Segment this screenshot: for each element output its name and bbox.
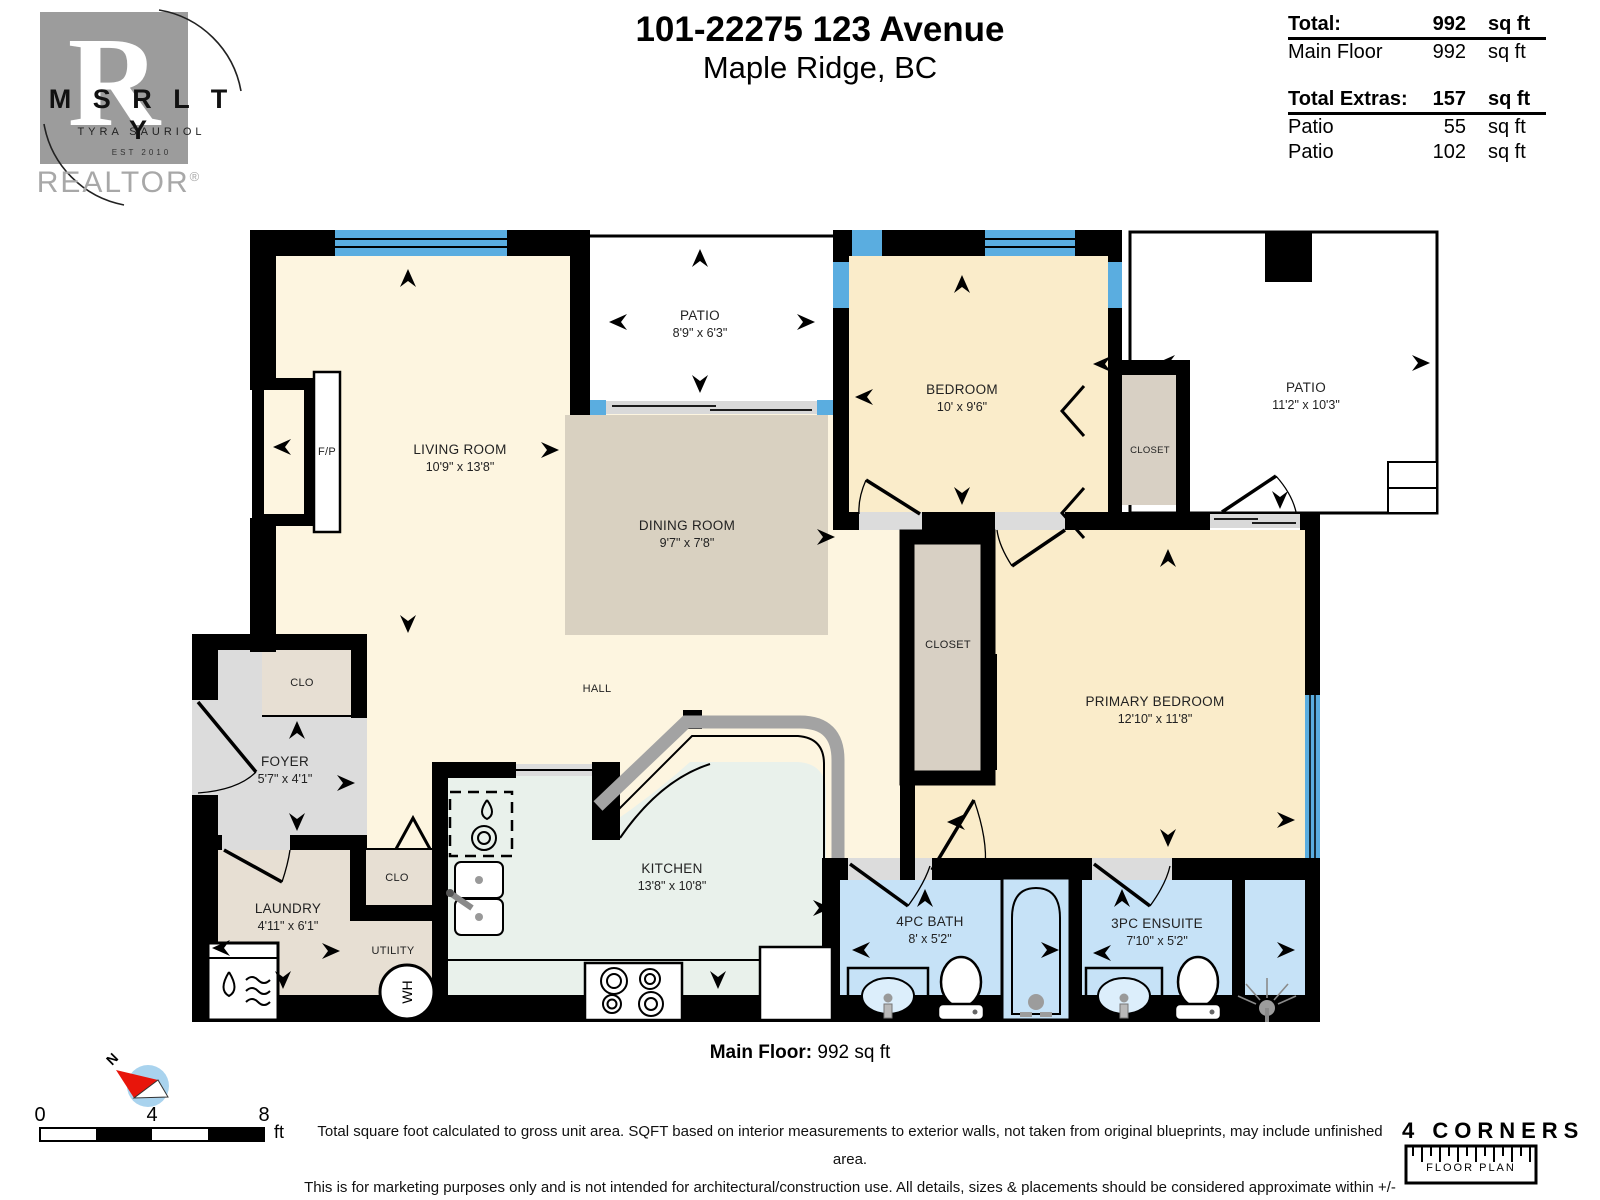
- room-label-clo-top: CLO: [290, 676, 314, 690]
- foyer-dims: 5'7" x 4'1": [258, 771, 313, 787]
- disclaimer-line-2: This is for marketing purposes only and …: [300, 1174, 1400, 1200]
- living-name: LIVING ROOM: [413, 441, 506, 459]
- bath-toilet-icon: [938, 957, 984, 1020]
- bathtub-icon: [1002, 878, 1070, 1020]
- room-label-patio-top: PATIO 8'9" x 6'3": [673, 307, 728, 341]
- washer-icon: [208, 943, 278, 1020]
- central-closet-name: CLOSET: [925, 638, 971, 652]
- floor-plan-page: R M S R L T Y TYRA SAURIOL EST 2010 REAL…: [0, 0, 1600, 1200]
- main-floor-caption-value: 992 sq ft: [817, 1042, 890, 1063]
- four-corners-subtitle: FLOOR PLAN: [1406, 1162, 1536, 1174]
- floor-plan-drawing: WH: [0, 0, 1600, 1200]
- room-label-patio-right: PATIO 11'2" x 10'3": [1272, 379, 1340, 413]
- water-heater-icon: WH: [380, 965, 434, 1019]
- room-label-kitchen: KITCHEN 13'8" x 10'8": [638, 860, 707, 894]
- room-label-utility: UTILITY: [371, 944, 414, 958]
- patio-column: [1265, 233, 1312, 282]
- room-label-primary: PRIMARY BEDROOM 12'10" x 11'8": [1085, 693, 1224, 727]
- dining-name: DINING ROOM: [639, 517, 735, 535]
- disclaimer-line-1: Total square foot calculated to gross un…: [300, 1118, 1400, 1174]
- bath-name: 4PC BATH: [896, 913, 963, 931]
- scale-unit: ft: [274, 1122, 284, 1143]
- laundry-dims: 4'11" x 6'1": [255, 918, 321, 934]
- central-closet-walls: [907, 537, 996, 778]
- room-label-living: LIVING ROOM 10'9" x 13'8": [413, 441, 506, 475]
- four-corners-logo: 4 CORNERS: [1402, 1118, 1542, 1144]
- bedroom-name: BEDROOM: [926, 381, 998, 399]
- four-corners-title: 4 CORNERS: [1402, 1118, 1542, 1144]
- clo-lower-name: CLO: [385, 871, 409, 885]
- room-label-foyer: FOYER 5'7" x 4'1": [258, 753, 313, 787]
- room-label-clo-lower: CLO: [385, 871, 409, 885]
- fridge-icon: [760, 947, 832, 1020]
- clo-top-name: CLO: [290, 676, 314, 690]
- kitchen-sink-icon: [446, 862, 503, 935]
- ensuite-name: 3PC ENSUITE: [1111, 915, 1203, 933]
- patio-step: [1388, 462, 1437, 488]
- hall-name: HALL: [583, 682, 612, 696]
- bedroom-dims: 10' x 9'6": [926, 399, 998, 415]
- utility-name: UTILITY: [371, 944, 414, 958]
- kitchen-dims: 13'8" x 10'8": [638, 878, 707, 894]
- patio-step: [1388, 488, 1437, 513]
- bedroom-closet-name: CLOSET: [1130, 445, 1170, 457]
- stove-icon: [585, 963, 682, 1020]
- ensuite-toilet-icon: [1175, 957, 1221, 1020]
- room-label-bath: 4PC BATH 8' x 5'2": [896, 913, 963, 947]
- patio-top-name: PATIO: [673, 307, 728, 325]
- fireplace-name: F/P: [318, 445, 336, 459]
- main-floor-caption-label: Main Floor:: [710, 1042, 812, 1063]
- scale-label-0: 0: [34, 1104, 45, 1127]
- primary-dims: 12'10" x 11'8": [1085, 711, 1224, 727]
- main-floor-caption: Main Floor: 992 sq ft: [0, 1042, 1600, 1064]
- laundry-name: LAUNDRY: [255, 900, 321, 918]
- room-label-bedroom-closet: CLOSET: [1130, 445, 1170, 457]
- room-label-bedroom: BEDROOM 10' x 9'6": [926, 381, 998, 415]
- dining-dims: 9'7" x 7'8": [639, 535, 735, 551]
- scale-bar: [40, 1128, 264, 1141]
- scale-label-8: 8: [258, 1104, 269, 1127]
- patio-top-dims: 8'9" x 6'3": [673, 325, 728, 341]
- living-dims: 10'9" x 13'8": [413, 459, 506, 475]
- water-heater-label: WH: [399, 980, 415, 1003]
- room-label-central-closet: CLOSET: [925, 638, 971, 652]
- foyer-name: FOYER: [258, 753, 313, 771]
- scale-label-4: 4: [146, 1104, 157, 1127]
- room-label-fireplace: F/P: [318, 445, 336, 459]
- bath-dims: 8' x 5'2": [896, 931, 963, 947]
- room-label-dining: DINING ROOM 9'7" x 7'8": [639, 517, 735, 551]
- room-label-laundry: LAUNDRY 4'11" x 6'1": [255, 900, 321, 934]
- disclaimer-text: Total square foot calculated to gross un…: [300, 1118, 1400, 1200]
- room-label-ensuite: 3PC ENSUITE 7'10" x 5'2": [1111, 915, 1203, 949]
- ensuite-dims: 7'10" x 5'2": [1111, 933, 1203, 949]
- primary-name: PRIMARY BEDROOM: [1085, 693, 1224, 711]
- room-label-hall: HALL: [583, 682, 612, 696]
- patio-right-dims: 11'2" x 10'3": [1272, 397, 1340, 413]
- bedroom-closet-floor: [1122, 375, 1176, 505]
- patio-right-name: PATIO: [1272, 379, 1340, 397]
- kitchen-name: KITCHEN: [638, 860, 707, 878]
